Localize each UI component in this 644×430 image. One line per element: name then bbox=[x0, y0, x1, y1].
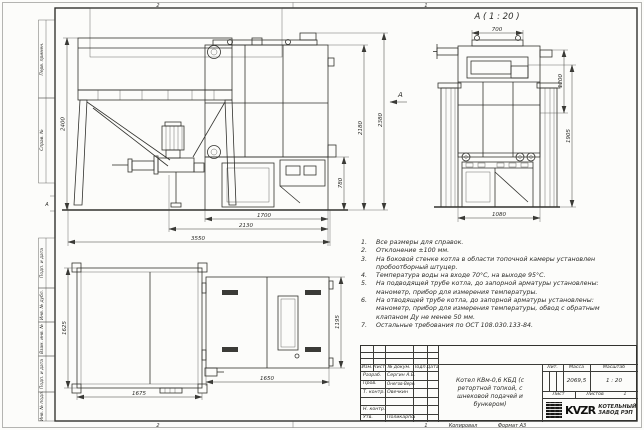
side-dimensions: 700 1200 1905 1080 bbox=[458, 27, 576, 222]
col-sign: Подп. bbox=[413, 364, 427, 371]
note-item: 2.Отклонение ±100 мм. bbox=[358, 247, 630, 255]
margin-column: Перв. примен. Справ. № Подп. и дата Инв.… bbox=[39, 20, 56, 421]
dim-plan-1625: 1625 bbox=[62, 321, 68, 335]
sheets-value: 1 bbox=[615, 391, 635, 398]
zone-row-marker: А bbox=[44, 202, 49, 208]
front-view bbox=[62, 33, 348, 210]
role-prov: Пров. bbox=[361, 380, 387, 389]
dim-plan-1650: 1650 bbox=[260, 376, 274, 382]
format-label: Формат А3 bbox=[498, 423, 526, 429]
name-razrab: Сергин А.В. bbox=[385, 371, 415, 380]
document-title: Котел КВм-0,6 КБД (с ретортной топкой, с… bbox=[438, 364, 542, 422]
scale-value: 1 : 20 bbox=[590, 371, 638, 391]
note-text: Отклонение ±100 мм. bbox=[376, 247, 630, 255]
zone-top-1: 1 bbox=[424, 3, 427, 9]
dim-side-700: 700 bbox=[492, 27, 503, 33]
margin-label-sprav: Справ. № bbox=[39, 129, 45, 151]
drawing-sheet: 2 1 2 1 Копировал Формат А3 А Перв. прим… bbox=[0, 0, 644, 430]
company-name: КОТЕЛЬНЫЙ ЗАВОД РЭП bbox=[598, 404, 636, 417]
kvzr-logo-icon bbox=[546, 402, 562, 418]
name-utv: Поликарпова bbox=[385, 414, 415, 423]
blank-stamp-box bbox=[90, 8, 282, 57]
name-prov: Онегов-Вережинский bbox=[385, 380, 415, 389]
note-text: Все размеры для справок. bbox=[376, 239, 630, 247]
dim-front-2380: 2380 bbox=[378, 113, 384, 127]
note-text: Остальные требования по ОСТ 108.030.133-… bbox=[376, 322, 630, 330]
scale-label: Масштаб bbox=[590, 364, 638, 371]
note-text: На отводящей трубе котла, до запорной ар… bbox=[376, 297, 630, 322]
plan-view bbox=[72, 263, 333, 393]
dim-front-2130: 2130 bbox=[239, 223, 253, 229]
dim-front-2400: 2400 bbox=[61, 117, 67, 131]
dim-front-2180: 2180 bbox=[358, 121, 364, 135]
lit-label: Лит. bbox=[542, 364, 563, 371]
company-line2: ЗАВОД РЭП bbox=[598, 410, 632, 416]
dim-plan-1195: 1195 bbox=[335, 315, 341, 329]
margin-label-podp1: Подп. и дата bbox=[39, 248, 45, 278]
view-arrow-label: А bbox=[397, 91, 403, 99]
note-number: 7. bbox=[358, 322, 376, 330]
role-utv: Утв. bbox=[361, 414, 387, 423]
mass-label: Масса bbox=[563, 364, 590, 371]
note-number: 6. bbox=[358, 297, 376, 322]
note-item: 6.На отводящей трубе котла, до запорной … bbox=[358, 297, 630, 322]
title-block: Изм. Лист № докум. Подп. Дата Разраб. Се… bbox=[360, 345, 637, 421]
col-izm: Изм. bbox=[361, 364, 373, 371]
sheet-label: Лист bbox=[542, 391, 575, 398]
sheets-label: Листов bbox=[575, 391, 615, 398]
detail-view-label: А ( 1 : 20 ) bbox=[473, 12, 519, 22]
mass-value: 2069,5 bbox=[563, 371, 590, 391]
kvzr-logo-text: KVZR bbox=[565, 404, 595, 417]
margin-label-inv-podl: Инв. № подл. bbox=[39, 391, 45, 421]
dim-side-1080: 1080 bbox=[492, 212, 506, 218]
note-item: 5.На подводящей трубе котла, до запорной… bbox=[358, 280, 630, 297]
col-doc: № докум. bbox=[385, 364, 413, 371]
note-text: На подводящей трубе котла, до запорной а… bbox=[376, 280, 630, 297]
note-number: 4. bbox=[358, 272, 376, 280]
note-number: 3. bbox=[358, 256, 376, 273]
note-text: На боковой стенке котла в области топочн… bbox=[376, 256, 630, 273]
col-list: Лист bbox=[373, 364, 385, 371]
side-view: А ( 1 : 20 ) bbox=[433, 12, 560, 207]
note-number: 2. bbox=[358, 247, 376, 255]
note-item: 1.Все размеры для справок. bbox=[358, 239, 630, 247]
copied-label: Копировал bbox=[449, 423, 478, 429]
dim-plan-1675: 1675 bbox=[132, 391, 146, 397]
note-number: 5. bbox=[358, 280, 376, 297]
note-item: 3.На боковой стенке котла в области топо… bbox=[358, 256, 630, 273]
dim-front-1700: 1700 bbox=[257, 213, 271, 219]
dim-side-1200: 1200 bbox=[558, 74, 564, 88]
role-tkontr: Т. контр. bbox=[361, 388, 387, 397]
margin-label-vzam: Взам. инв. № bbox=[39, 324, 45, 354]
zone-bottom-1: 1 bbox=[424, 423, 427, 429]
margin-label-perv: Перв. примен. bbox=[39, 43, 45, 76]
dim-front-780: 780 bbox=[338, 177, 344, 188]
zone-bottom-2: 2 bbox=[156, 423, 159, 429]
role-nkontr: Н. контр. bbox=[361, 405, 387, 414]
dim-side-1905: 1905 bbox=[566, 129, 572, 143]
company-line1: КОТЕЛЬНЫЙ bbox=[598, 404, 636, 410]
notes-list: 1.Все размеры для справок. 2.Отклонение … bbox=[358, 239, 630, 330]
dim-front-3550: 3550 bbox=[191, 236, 205, 242]
col-date: Дата bbox=[427, 364, 438, 371]
note-number: 1. bbox=[358, 239, 376, 247]
note-item: 7.Остальные требования по ОСТ 108.030.13… bbox=[358, 322, 630, 330]
margin-label-podp2: Подп. и дата bbox=[39, 359, 45, 389]
plan-dimensions: 1625 1675 1650 1195 bbox=[62, 268, 345, 400]
role-razrab: Разраб. bbox=[361, 371, 387, 380]
name-tkontr: Овечкин bbox=[385, 388, 415, 397]
margin-label-inv-dubl: Инв. № дубл. bbox=[39, 290, 45, 320]
